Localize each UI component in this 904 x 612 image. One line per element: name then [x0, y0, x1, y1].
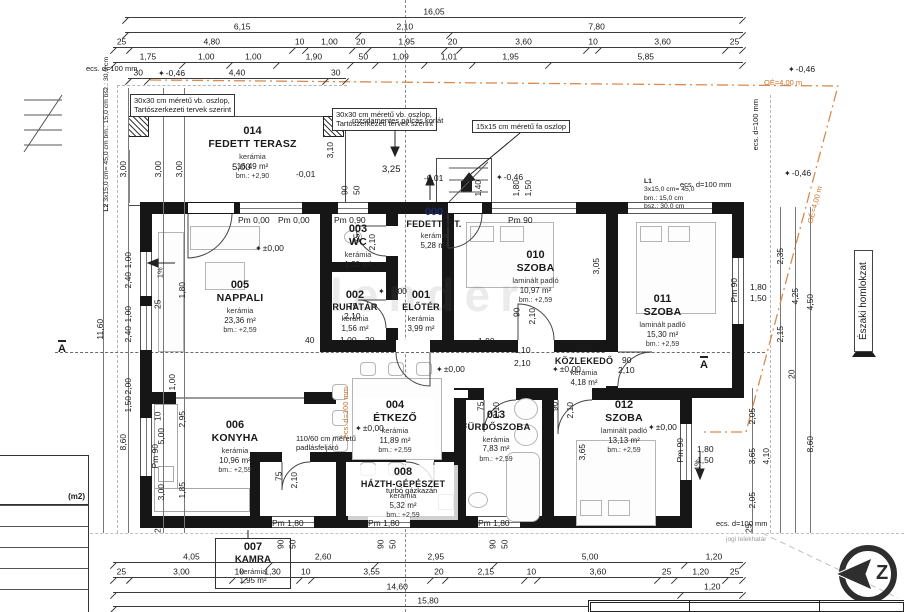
- dim-label: 20: [365, 336, 374, 345]
- dim-segment: 1,01: [425, 50, 472, 62]
- dim-line: [184, 88, 185, 533]
- dim-label: 50: [388, 540, 397, 549]
- pillow: [580, 500, 602, 516]
- dim-label: 2,10: [514, 359, 531, 368]
- paving-dashed-line: [117, 85, 347, 86]
- dim-segment: 20: [445, 35, 461, 47]
- dim-segment: 3,55: [312, 565, 431, 577]
- elevation-mark: ✦±0,00: [355, 423, 384, 433]
- pm-mark: Pm 0,00: [238, 216, 270, 225]
- dim-segment: 1,20: [685, 550, 743, 562]
- elevation-mark-icon: ✦: [158, 69, 165, 78]
- stair-note-L1: L1 3x15,0 cm= 45,0 bm.: 15,0 cm bsz.: 30…: [644, 178, 694, 212]
- dim-label: 5,00: [232, 163, 251, 173]
- note-railing: rozsdamentes pálcás korlát: [352, 116, 443, 125]
- dim-label: 11,60: [96, 319, 105, 340]
- pm-mark: Pm 0,90: [334, 216, 366, 225]
- dim-label: 2,40: [124, 326, 133, 343]
- dim-segment: 3,00: [130, 565, 233, 577]
- dim-segment: 2,15: [446, 565, 525, 577]
- kitchen-counter-line: [176, 397, 304, 399]
- sofa: [190, 226, 260, 250]
- elevation-mark-icon: ✦: [378, 287, 385, 296]
- dim-segment: 1,09: [376, 50, 426, 62]
- door-dim: 2,10: [344, 312, 361, 321]
- pm-mark: Pm 1,80: [272, 519, 304, 528]
- note-roof-eave: OÉ=4,00 m: [764, 78, 802, 87]
- section-line: [55, 352, 765, 353]
- kitchen-appliance: [158, 466, 174, 482]
- dim-label: 1,00: [340, 336, 357, 345]
- dim-label: 1,80: [750, 283, 767, 292]
- dim-segment: 5,00: [495, 550, 685, 562]
- dim-label: 2,05: [748, 408, 757, 425]
- dim-label: 3,00: [154, 161, 163, 178]
- dim-label: 90: [276, 540, 285, 549]
- dim-label: 40: [305, 336, 314, 345]
- paving-dashed-line: [117, 85, 118, 533]
- door-dim: 75: [348, 302, 357, 311]
- title-block: [588, 600, 904, 612]
- dim-label: 3,05: [592, 258, 601, 275]
- note-ecs: ecs. d=100 mm: [86, 64, 137, 73]
- door-opening: [396, 340, 430, 352]
- door-opening: [386, 226, 398, 256]
- room-label-014: 014 FEDETT TERASZ kerámia 16,49 m² bm.: …: [195, 124, 310, 181]
- elevation-mark: ✦±0,00: [436, 364, 465, 374]
- room-label-003: 003 WC kerámia 1,20 m²: [330, 222, 386, 270]
- toilet: [468, 492, 488, 508]
- note-boiler: turbó gázkazán: [386, 486, 437, 495]
- dim-segment: 4,80: [130, 35, 293, 47]
- dim-label: -0,01: [296, 170, 315, 179]
- dim-segment: 30: [326, 66, 346, 78]
- door-dim: 2,10: [492, 402, 501, 419]
- legend-row: [0, 526, 88, 547]
- dim-segment: 4,05: [113, 550, 270, 562]
- note-ecs: ecs. d=100 mm: [751, 99, 760, 150]
- wall-kamra-008: [336, 462, 346, 516]
- dim-segment: 10: [293, 35, 306, 47]
- door-opening: [484, 388, 516, 400]
- legend-row: [0, 568, 88, 589]
- dim-label: 20: [787, 370, 796, 379]
- dim-label: 1,80: [697, 445, 714, 454]
- dim-chain-bottom-1: 4,052,602,955,001,20: [113, 550, 743, 563]
- dim-label: 4,10: [762, 448, 771, 465]
- door-dim: 75: [476, 402, 485, 411]
- dim-label: 1,00: [124, 306, 133, 323]
- dim-segment: 10: [300, 565, 312, 577]
- note-ecs: ecs. d=100 mm: [716, 519, 767, 528]
- dim-label: 1,10: [514, 346, 531, 355]
- elevation-mark: ✦±0,00: [552, 364, 581, 374]
- floor-plan-canvas: lender: [0, 0, 904, 612]
- elevation-mark-icon: ✦: [355, 424, 362, 433]
- chair: [360, 362, 376, 376]
- dim-label: 2,35: [776, 248, 785, 265]
- dim-segment: 20: [353, 35, 369, 47]
- chair: [416, 362, 432, 376]
- dim-segment: 6,15: [125, 20, 359, 32]
- dim-segment: 1,00: [306, 35, 353, 47]
- facade-label: Északi homlokzat: [854, 250, 873, 352]
- compass-letter: Z: [876, 562, 888, 585]
- dim-segment: 16,05: [125, 5, 743, 17]
- dim-label: 25: [153, 524, 162, 533]
- dim-line: [163, 88, 164, 533]
- dim-segment: 3,60: [460, 35, 587, 47]
- dim-segment: 14,60: [113, 580, 681, 592]
- dim-label: 1,40: [474, 180, 483, 197]
- pm-mark: Pm 1,80: [368, 519, 400, 528]
- dim-segment: 25: [113, 565, 130, 577]
- pillow: [640, 226, 662, 242]
- section-marker: A: [700, 356, 708, 371]
- pm-mark: Pm 90: [730, 278, 739, 303]
- dim-label: 1,00: [124, 252, 133, 269]
- concrete-column-icon: [128, 116, 149, 137]
- dim-label: 2,00: [124, 378, 133, 395]
- dim-segment: 1,20: [681, 580, 743, 592]
- elevation-mark: ✦±0,00: [648, 422, 677, 432]
- note-ecs: ecs. d=100 mm: [341, 387, 350, 438]
- door-dim: 75: [274, 472, 283, 481]
- dim-segment: 20: [431, 565, 446, 577]
- dim-label: 3,00: [119, 161, 128, 178]
- dim-label: 90: [488, 540, 497, 549]
- dim-segment: 10: [233, 565, 245, 577]
- elevation-mark: ✦±0,00: [255, 243, 284, 253]
- door-dim: 2,10: [368, 234, 377, 251]
- dim-segment: 1,95: [369, 35, 445, 47]
- dim-label: 1,85: [178, 482, 187, 499]
- dim-label: 1,80: [178, 282, 187, 299]
- note-slope: 1%: [693, 459, 702, 470]
- dim-label: 50: [352, 186, 361, 195]
- window: [140, 306, 152, 350]
- elevation-mark-icon: ✦: [784, 169, 791, 178]
- pm-mark: Pm 90: [508, 216, 533, 225]
- dim-segment: 3,60: [599, 35, 726, 47]
- dim-label: 90: [376, 540, 385, 549]
- dim-segment: 2,95: [376, 550, 495, 562]
- dim-label: 1,50: [750, 294, 767, 303]
- door-dim: 2,10: [290, 472, 299, 489]
- note-vb-column: 30x30 cm méretű vb. oszlop, Tartószerkez…: [130, 94, 235, 117]
- door-dim: 75: [352, 234, 361, 243]
- room-label-011: 011 SZOBA laminált padló 15,30 m² bm.: +…: [615, 292, 710, 349]
- door-dim: 90: [512, 308, 521, 317]
- dim-line: [810, 207, 811, 533]
- elevation-mark-icon: ✦: [436, 365, 443, 374]
- dim-label: 10: [153, 412, 162, 421]
- dim-segment: 10: [587, 35, 600, 47]
- dim-segment: 25: [113, 35, 130, 47]
- door-dim: 90: [622, 356, 631, 365]
- dim-label: 50: [500, 540, 509, 549]
- pillow: [500, 226, 524, 242]
- note-wood-column: 15x15 cm méretű fa oszlop: [472, 120, 570, 133]
- dim-segment: 25: [658, 565, 675, 577]
- door-dim: 2,10: [528, 308, 537, 325]
- elevation-mark-icon: ✦: [552, 365, 559, 374]
- pillow: [608, 500, 630, 516]
- dim-segment: 1,95: [473, 50, 549, 62]
- elevation-mark: ✦±0,00: [378, 286, 407, 296]
- pm-mark: Pm 0,00: [278, 216, 310, 225]
- window: [338, 202, 368, 214]
- dim-label: 3,10: [326, 142, 335, 159]
- dim-label: 10: [322, 336, 331, 345]
- legend-header: (m2): [0, 456, 88, 505]
- dim-segment: 1,90: [277, 50, 351, 62]
- pillow: [470, 226, 494, 242]
- door-dim: 2,10: [618, 366, 635, 375]
- section-marker: A: [58, 340, 66, 355]
- dim-label: 1,80: [512, 180, 521, 197]
- kitchen-counter: [154, 488, 250, 512]
- dim-segment: 5,85: [549, 50, 743, 62]
- paving-dashed-line: [770, 95, 771, 533]
- dim-label: 3,25: [382, 165, 401, 175]
- dim-label: 2,40: [124, 272, 133, 289]
- legend-row: [0, 589, 88, 610]
- dim-label: 1,50: [124, 396, 133, 413]
- dim-chain-bottom-3: 14,601,20: [113, 580, 743, 593]
- dim-segment: 7,80: [450, 20, 743, 32]
- plot-boundary-line: [0, 533, 904, 534]
- exterior-wall-left: [140, 202, 152, 528]
- door-dim: 2,10: [566, 402, 575, 419]
- note-plot-boundary: jogi telekhatár: [726, 536, 766, 544]
- window: [492, 202, 576, 214]
- legend-row: [0, 505, 88, 526]
- elevation-mark-icon: ✦: [255, 244, 262, 253]
- stair-note-L2: L2 3x15,0 cm= 45,0 cm bm.: 15,0 cm bsz.:…: [103, 57, 111, 212]
- elevation-mark: ✦-0,46: [496, 172, 523, 182]
- elevation-mark: ✦-0,46: [784, 168, 811, 178]
- dim-label: 1,00: [168, 374, 177, 391]
- dim-chain-top-1: 16,05: [125, 5, 743, 18]
- room-label-010: 010 SZOBA laminált padló 10,97 m² bm.: +…: [488, 248, 583, 305]
- elevation-mark: ✦-0,46: [788, 64, 815, 74]
- elevation-mark: ✦-0,46: [158, 68, 185, 78]
- window: [140, 252, 152, 296]
- dim-segment: 25: [726, 565, 743, 577]
- chair: [388, 362, 404, 376]
- room-label-000: 000 FEDETT E.T. kerámia 5,28 m²: [398, 205, 470, 251]
- dim-segment: 25: [726, 35, 743, 47]
- note-slope: 1%: [156, 267, 165, 278]
- dim-chain-top-3: 254,80101,00201,95203,60103,6025: [113, 35, 743, 48]
- pillow: [668, 226, 690, 242]
- dim-label: 2,95: [178, 411, 187, 428]
- dim-label: 8,60: [119, 434, 128, 451]
- dim-segment: 1,00: [230, 50, 277, 62]
- dim-label: 2,05: [748, 492, 757, 509]
- door-dim: 90: [550, 402, 559, 411]
- pm-mark: Pm 90: [676, 438, 685, 463]
- dim-segment: 1,00: [183, 50, 230, 62]
- elevation-mark-icon: ✦: [788, 65, 795, 74]
- dim-label: 3,65: [578, 444, 587, 461]
- dim-segment: 1,20: [675, 565, 726, 577]
- dim-label: 50: [288, 540, 297, 549]
- dim-chain-top-2: 6,152,107,80: [125, 20, 743, 33]
- legend-row: [0, 547, 88, 568]
- dim-chain-top-4: 1,751,001,001,90501,091,011,955,85: [113, 50, 743, 63]
- dim-segment: 1,30: [245, 565, 299, 577]
- elevation-mark-icon: ✦: [496, 173, 503, 182]
- window: [240, 202, 302, 214]
- elevation-mark-icon: ✦: [648, 423, 655, 432]
- dim-label: -0,01: [424, 174, 443, 183]
- dim-label: 25: [153, 300, 162, 309]
- dim-label: 4,50: [806, 294, 815, 311]
- dim-chain-bottom-2: 253,00101,30103,55202,15103,60251,2025: [113, 565, 743, 578]
- wood-column-icon: [461, 181, 472, 192]
- room-label-006: 006 KONYHA kerámia 10,96 m² bm.: +2,59: [190, 418, 280, 475]
- dim-segment: 2,10: [359, 20, 450, 32]
- pm-mark: Pm 90: [151, 444, 160, 469]
- dim-label: 3,00: [157, 484, 166, 501]
- opening-corridor-west: [454, 390, 468, 398]
- dim-segment: 2,60: [270, 550, 377, 562]
- door-opening: [188, 203, 234, 213]
- dim-segment: 1,75: [113, 50, 183, 62]
- dim-segment: 3,60: [538, 565, 659, 577]
- note-roof-eave: OÉ=4,00 m: [806, 185, 825, 224]
- dim-label: 2,15: [776, 326, 785, 343]
- legend-table: (m2): [0, 455, 89, 612]
- dim-label: 90: [340, 186, 349, 195]
- dim-label: 3,65: [748, 448, 757, 465]
- door-opening: [282, 452, 310, 462]
- dim-label: 8,60: [806, 436, 815, 453]
- dim-label: 4,25: [791, 288, 800, 305]
- note-slope: 1%: [424, 202, 435, 211]
- dim-label: 5,00: [157, 428, 166, 445]
- room-label-005: 005 NAPPALI kerámia 23,36 m² bm.: +2,59: [195, 278, 285, 335]
- dim-label: 1,90: [478, 337, 495, 346]
- dim-segment: 50: [351, 50, 376, 62]
- pm-mark: Pm 1,80: [478, 519, 510, 528]
- wall-005-006-stub: [140, 392, 176, 404]
- dim-label: 3,00: [175, 161, 184, 178]
- dim-segment: 10: [525, 565, 537, 577]
- dim-label: 1,50: [524, 180, 533, 197]
